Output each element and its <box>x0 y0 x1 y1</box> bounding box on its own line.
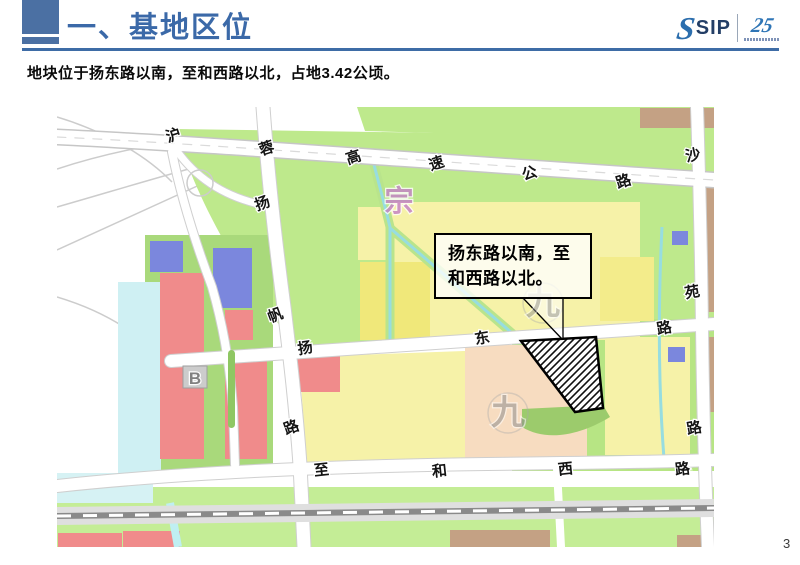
header-rule <box>22 48 779 51</box>
parcel-blue3 <box>672 231 688 245</box>
parcel-red-bottom2 <box>123 531 180 547</box>
site-callout: 扬东路以南，至 和西路以北。 <box>434 233 592 299</box>
subtitle-text: 地块位于扬东路以南，至和西路以北，占地3.42公顷。 <box>27 62 399 83</box>
sip-logo-text: SIP <box>696 17 731 40</box>
map-label-宗: 宗 <box>384 184 413 218</box>
anniversary-mark: 25 <box>744 15 780 41</box>
map-label-扬: 扬 <box>296 338 314 358</box>
parcel-brown-bottom1 <box>450 530 550 547</box>
sip-logo: S SIP 25 <box>677 8 780 48</box>
header-accent-bar <box>22 37 59 44</box>
page-number: 3 <box>783 536 790 551</box>
parcel-red2 <box>225 310 253 340</box>
road-median <box>228 350 235 428</box>
map-label-B: B <box>189 369 201 388</box>
water-left <box>118 282 161 477</box>
map-label-西: 西 <box>557 460 574 478</box>
map-svg: 沪蓉高速公路沙扬帆路苑路扬东路至和西路宗九九B <box>57 107 714 547</box>
header-accent-square <box>22 0 59 34</box>
map-label-东: 东 <box>473 328 491 348</box>
location-map: 沪蓉高速公路沙扬帆路苑路扬东路至和西路宗九九B 扬东路以南，至 和西路以北。 <box>57 107 714 547</box>
logo-divider <box>737 14 738 42</box>
map-label-路: 路 <box>674 459 692 479</box>
parcel-blue4 <box>668 347 685 362</box>
parcel-yellow-right-top <box>600 257 654 321</box>
parcel-blue1 <box>150 241 183 272</box>
map-label-至: 至 <box>313 461 330 479</box>
railway <box>57 508 714 516</box>
page-title: 一、基地区位 <box>67 4 253 46</box>
anniversary-caption <box>744 38 780 41</box>
sip-s-mark-icon: S <box>675 12 697 44</box>
map-label-苑: 苑 <box>683 282 701 302</box>
slide: { "slide": { "title": "一、基地区位", "subtitl… <box>0 0 800 565</box>
parcel-red-bottom1 <box>58 533 122 547</box>
callout-line1: 扬东路以南，至 <box>448 242 586 267</box>
parcel-yellow-b <box>360 262 430 340</box>
map-label-和: 和 <box>431 462 448 480</box>
map-label-九: 九 <box>491 394 525 432</box>
anniversary-25: 25 <box>749 15 775 36</box>
callout-line2: 和西路以北。 <box>448 267 586 292</box>
